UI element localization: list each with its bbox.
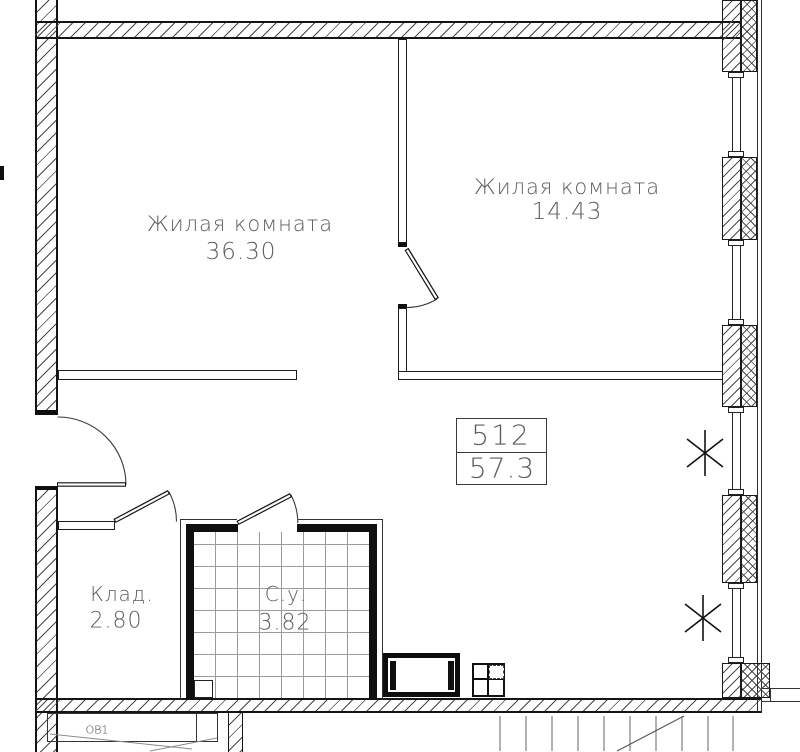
room-closet-name: Клад. (90, 582, 153, 606)
partition-rooms-lower (398, 308, 407, 372)
window-frame-cap (728, 407, 744, 413)
slab-edge-line (762, 701, 800, 702)
window-frame (732, 588, 741, 658)
room-living-1-area: 36.30 (206, 239, 277, 265)
bathroom-wall-top-left (186, 524, 238, 532)
window-frame-cap (728, 240, 744, 246)
partition-closet-top (58, 521, 115, 530)
heating-register-label: ОВ1 (86, 724, 109, 737)
bathroom-outline (298, 519, 383, 520)
window-frame-cap (728, 657, 744, 663)
wall-end-cap (35, 410, 58, 415)
exterior-wall-right-outer-face (757, 0, 762, 713)
floor-plan: Жилая комната 36.30 Жилая комната 14.43 … (0, 0, 800, 752)
room-living-1-region (58, 39, 398, 370)
room-living-1-name: Жилая комната (147, 212, 333, 236)
electrical-panel-bar (390, 661, 396, 690)
wall-end-cap (35, 486, 58, 490)
window-frame (732, 412, 741, 490)
door-jamb-cap (398, 243, 407, 247)
slab-edge-line (770, 688, 771, 702)
room-closet-area: 2.80 (90, 609, 143, 634)
bathroom-door (238, 495, 298, 523)
exterior-wall-top (35, 21, 742, 39)
stamp-apartment-number: 512 (471, 419, 530, 452)
wall-pier (722, 325, 741, 407)
exterior-wall-bottom (35, 698, 762, 713)
closet-door (115, 492, 177, 522)
window-frame-cap (728, 72, 744, 78)
wall-pier-insulation (741, 663, 770, 698)
door-jamb-cap (398, 304, 407, 308)
heating-register-box (47, 713, 218, 742)
window-frame-cap (728, 489, 744, 495)
wall-pier-insulation (741, 495, 757, 583)
stairs-below (500, 716, 733, 751)
exterior-wall-left-upper (35, 0, 58, 412)
window-frame-cap (728, 319, 744, 325)
wall-pier (722, 157, 741, 240)
wall-pier (722, 0, 741, 72)
partition-rooms-upper (398, 39, 407, 243)
bathroom-wall-left (186, 524, 194, 700)
wall-pier (722, 495, 741, 583)
window-frame-cap (728, 583, 744, 589)
slab-edge-line (762, 688, 800, 689)
wall-pier-insulation (741, 0, 757, 72)
wall-pier (722, 663, 741, 698)
asterisk-symbol (687, 430, 723, 476)
partition-room1-bottom (58, 370, 297, 380)
bathroom-wall-top-right (297, 524, 377, 532)
electrical-panel-bar (448, 661, 454, 690)
wall-stub-below (228, 713, 243, 752)
heating-register-divider (196, 713, 197, 742)
section-mark (0, 166, 4, 180)
entry-door (57, 417, 126, 485)
bathroom-wall-right (369, 524, 377, 700)
stamp-total-area: 57.3 (469, 452, 535, 485)
partition-room2-bottom (398, 371, 723, 380)
room-living-2-area: 14.43 (532, 199, 603, 225)
asterisk-symbol (685, 595, 721, 641)
window-frame (732, 245, 741, 320)
window-frame-cap (728, 151, 744, 157)
bathroom-outline (180, 519, 181, 700)
vent-shaft-dashed-cell (489, 665, 504, 679)
room-bathroom-area: 3.82 (259, 611, 312, 636)
room-living-2-name: Жилая комната (474, 175, 660, 199)
wall-pier-insulation (741, 157, 757, 240)
window-frame (732, 77, 741, 152)
bathroom-outline (180, 519, 237, 520)
wall-pier-insulation (741, 325, 757, 407)
room-bathroom-name: С.у. (265, 582, 308, 606)
